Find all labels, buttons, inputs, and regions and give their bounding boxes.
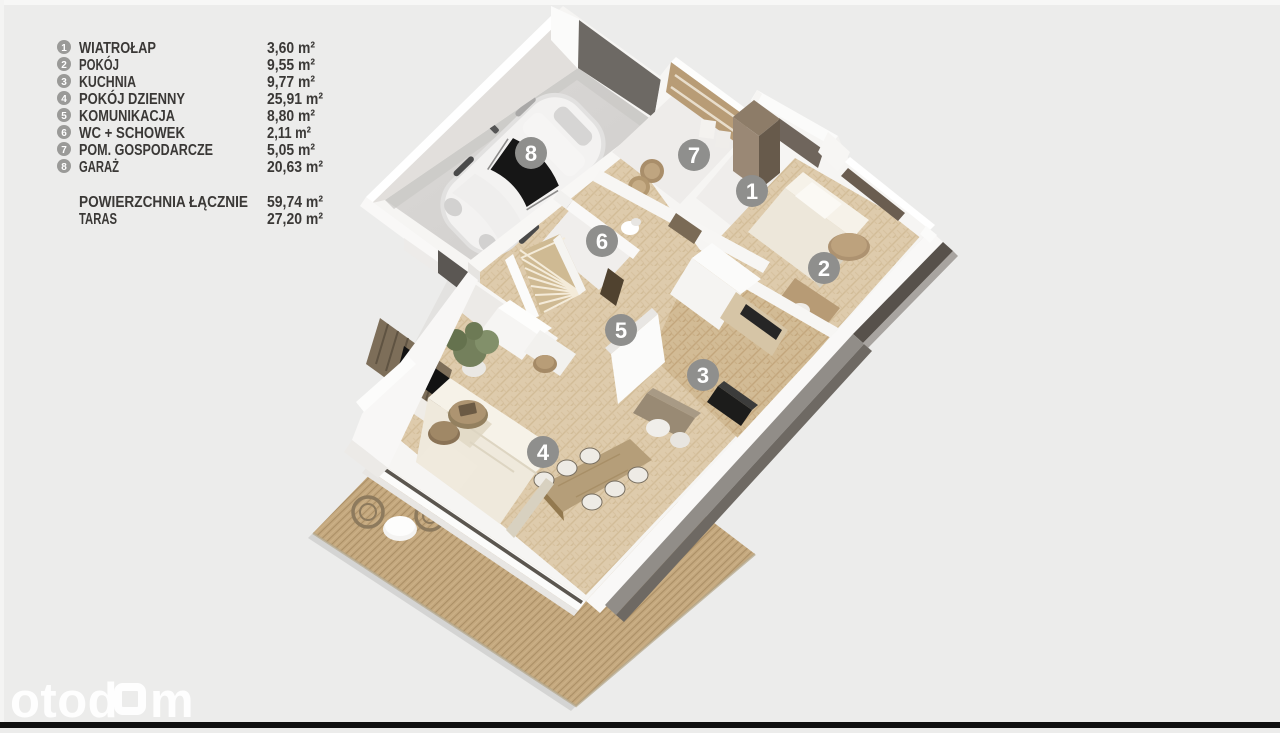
svg-text:2: 2 [61,60,67,71]
svg-text:4: 4 [537,440,550,465]
svg-text:20,63 m²: 20,63 m² [267,159,323,176]
svg-text:KOMUNIKACJA: KOMUNIKACJA [79,108,175,125]
svg-text:WC + SCHOWEK: WC + SCHOWEK [79,125,185,142]
svg-text:27,20 m²: 27,20 m² [267,211,323,228]
svg-text:8: 8 [61,162,67,173]
svg-text:9,55 m²: 9,55 m² [267,57,315,74]
svg-text:59,74 m²: 59,74 m² [267,194,323,211]
svg-text:6: 6 [596,229,608,254]
svg-text:POWIERZCHNIA ŁĄCZNIE: POWIERZCHNIA ŁĄCZNIE [79,194,248,211]
svg-text:8,80 m²: 8,80 m² [267,108,315,125]
svg-text:6: 6 [61,128,67,139]
svg-text:2,11 m²: 2,11 m² [267,125,311,142]
svg-text:3,60 m²: 3,60 m² [267,40,315,57]
svg-text:5,05 m²: 5,05 m² [267,142,315,159]
svg-text:3: 3 [697,363,709,388]
svg-text:5: 5 [61,111,67,122]
svg-text:2: 2 [818,256,830,281]
svg-text:5: 5 [615,318,627,343]
svg-text:otod: otod [10,674,118,728]
svg-text:GARAŻ: GARAŻ [79,158,119,176]
svg-text:3: 3 [61,77,67,88]
svg-text:POM. GOSPODARCZE: POM. GOSPODARCZE [79,142,213,159]
svg-text:8: 8 [525,141,537,166]
svg-text:25,91 m²: 25,91 m² [267,91,323,108]
svg-text:7: 7 [61,145,67,156]
svg-text:POKÓJ DZIENNY: POKÓJ DZIENNY [79,89,185,108]
svg-text:1: 1 [746,179,758,204]
svg-text:KUCHNIA: KUCHNIA [79,74,136,91]
svg-text:4: 4 [61,94,67,105]
svg-text:WIATROŁAP: WIATROŁAP [79,40,156,57]
svg-text:m: m [150,674,194,728]
svg-text:1: 1 [61,43,67,54]
svg-text:9,77 m²: 9,77 m² [267,74,315,91]
svg-text:TARAS: TARAS [79,211,117,228]
svg-text:POKÓJ: POKÓJ [79,55,119,74]
svg-text:7: 7 [688,143,700,168]
